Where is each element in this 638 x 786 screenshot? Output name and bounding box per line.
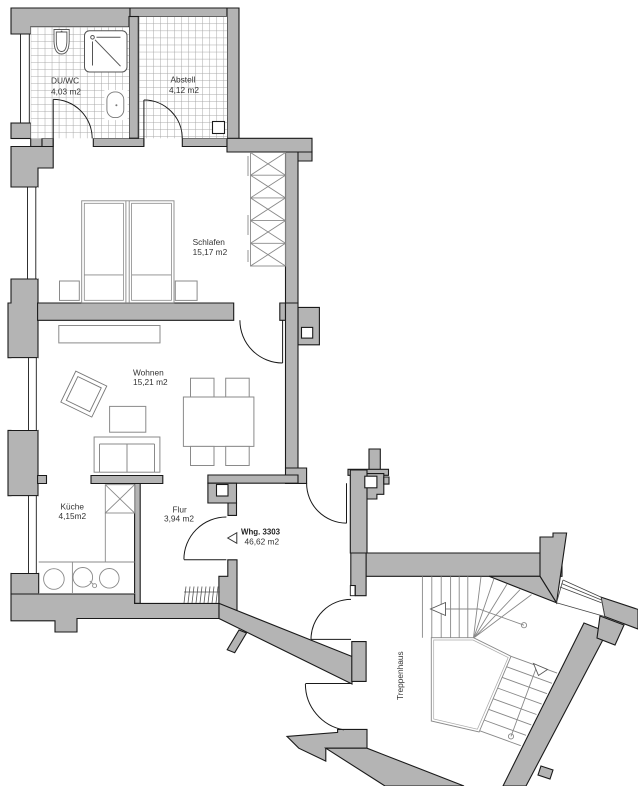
svg-text:DU/WC: DU/WC bbox=[51, 76, 79, 86]
svg-text:Schlafen: Schlafen bbox=[193, 237, 226, 247]
svg-text:46,62 m2: 46,62 m2 bbox=[245, 536, 280, 546]
svg-text:Treppenhaus: Treppenhaus bbox=[395, 651, 405, 700]
svg-text:15,21 m2: 15,21 m2 bbox=[133, 377, 168, 387]
svg-text:4,15m2: 4,15m2 bbox=[59, 511, 87, 521]
svg-text:3,94 m2: 3,94 m2 bbox=[164, 514, 194, 524]
svg-text:Wohnen: Wohnen bbox=[133, 368, 164, 378]
svg-text:15,17 m2: 15,17 m2 bbox=[193, 247, 228, 257]
svg-text:4,03 m2: 4,03 m2 bbox=[51, 87, 81, 97]
svg-text:4,12 m2: 4,12 m2 bbox=[169, 85, 199, 95]
svg-text:Abstell: Abstell bbox=[171, 75, 196, 85]
svg-text:Whg. 3303: Whg. 3303 bbox=[241, 527, 281, 536]
